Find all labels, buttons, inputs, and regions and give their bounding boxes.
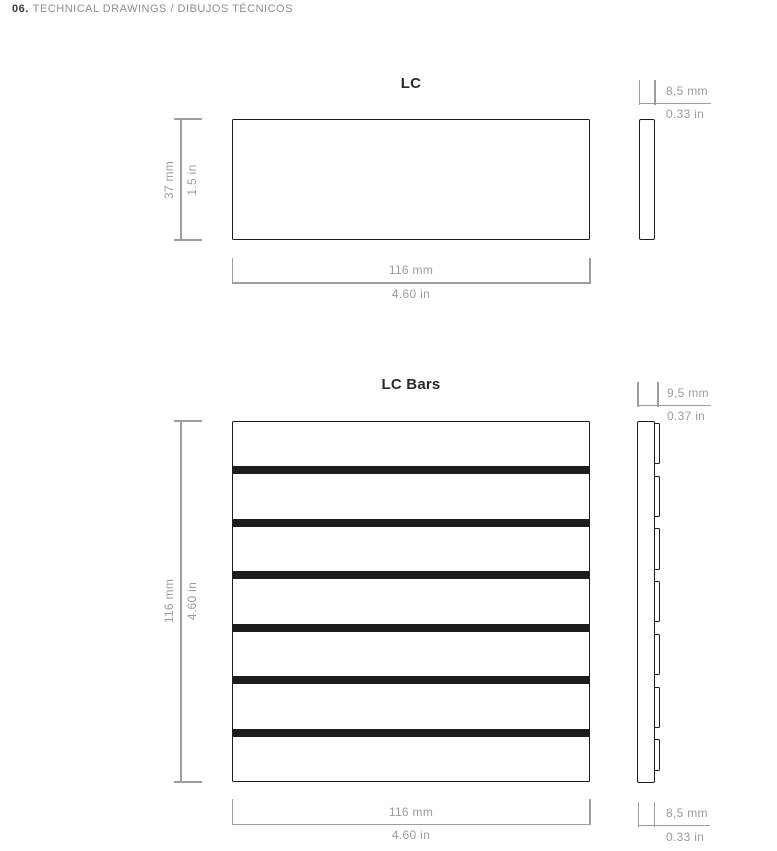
dimension-tick — [638, 802, 640, 827]
lc-bars-side-tab — [654, 528, 661, 569]
lc-bars-groove — [233, 466, 589, 474]
dimension-line — [638, 825, 710, 827]
dimension-tick — [174, 420, 202, 422]
lc-thickness-mm-label: 8,5 mm — [666, 84, 708, 98]
lc-bars-width-mm-label: 116 mm — [232, 805, 590, 819]
figure-lc-bars-title: LC Bars — [232, 376, 590, 393]
lc-height-mm-label: 37 mm — [162, 161, 176, 199]
lc-bars-bottom-thickness-in-label: 0.33 in — [666, 830, 704, 844]
figure-lc-title: LC — [232, 75, 590, 92]
dimension-line — [637, 405, 711, 407]
dimension-line — [232, 824, 591, 826]
lc-bars-height-mm-label: 116 mm — [162, 579, 176, 623]
lc-side-view — [639, 119, 655, 240]
dimension-tick — [174, 781, 202, 783]
dimension-tick — [657, 382, 659, 407]
lc-bars-side-tab — [654, 739, 661, 771]
lc-bars-height-in-label: 4.60 in — [185, 582, 199, 620]
lc-bars-groove — [233, 519, 589, 527]
dimension-tick — [639, 80, 641, 105]
lc-width-mm-label: 116 mm — [232, 263, 590, 277]
lc-bars-side-view — [637, 421, 661, 783]
dimension-line — [232, 282, 591, 284]
lc-bars-side-tab — [654, 634, 661, 675]
lc-bars-groove — [233, 729, 589, 737]
lc-bars-groove — [233, 571, 589, 579]
dimension-tick — [174, 239, 202, 241]
lc-bars-side-tab — [654, 581, 661, 622]
lc-front-view — [232, 119, 590, 240]
dimension-tick — [654, 802, 656, 827]
lc-height-in-label: 1.5 in — [185, 164, 199, 195]
lc-bars-side-body — [637, 421, 655, 783]
lc-bars-side-tab — [654, 687, 661, 728]
lc-bars-bottom-thickness-mm-label: 8,5 mm — [666, 806, 708, 820]
technical-drawings-page: 06.TECHNICAL DRAWINGS / DIBUJOS TÉCNICOS… — [0, 0, 777, 851]
lc-bars-side-tab — [654, 476, 661, 517]
lc-bars-width-in-label: 4.60 in — [232, 828, 590, 842]
dimension-line — [180, 119, 182, 241]
lc-bars-top-thickness-in-label: 0.37 in — [667, 409, 705, 423]
lc-bars-groove — [233, 676, 589, 684]
page-header: 06.TECHNICAL DRAWINGS / DIBUJOS TÉCNICOS — [12, 3, 293, 15]
lc-thickness-in-label: 0.33 in — [666, 107, 704, 121]
lc-width-in-label: 4.60 in — [232, 287, 590, 301]
lc-bars-groove — [233, 624, 589, 632]
dimension-line — [639, 103, 711, 105]
dimension-tick — [637, 382, 639, 407]
lc-bars-top-thickness-mm-label: 9,5 mm — [667, 386, 709, 400]
dimension-tick — [654, 80, 656, 105]
dimension-tick — [174, 118, 202, 120]
section-title: TECHNICAL DRAWINGS / DIBUJOS TÉCNICOS — [33, 3, 293, 15]
lc-bars-side-tab — [654, 423, 661, 464]
dimension-line — [180, 421, 182, 783]
lc-bars-front-view — [232, 421, 590, 782]
section-number: 06. — [12, 3, 29, 15]
